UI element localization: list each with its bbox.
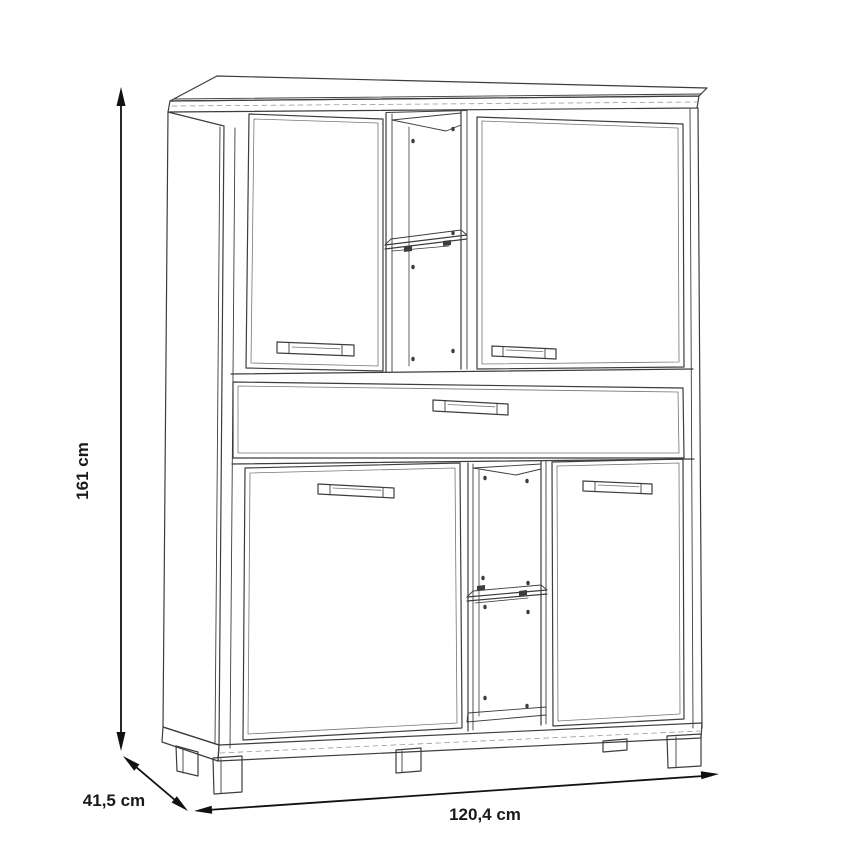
cabinet-right-corner xyxy=(690,108,702,728)
top-left-door xyxy=(246,114,383,371)
top-right-door-handle xyxy=(492,346,556,359)
shelf-bracket xyxy=(443,240,451,246)
cabinet-left-side-panel xyxy=(163,112,235,748)
arrowhead-right-icon xyxy=(701,771,719,779)
cabinet-diagram-svg: 161 cm 41,5 cm 120,4 cm xyxy=(0,0,865,866)
drawer-handle xyxy=(433,400,508,415)
drawer xyxy=(233,382,684,458)
bottom-left-door-handle xyxy=(318,484,394,498)
bottom-left-door xyxy=(243,463,462,740)
shelf-bracket xyxy=(519,590,527,596)
bottom-right-door xyxy=(552,459,684,726)
shelf-bracket xyxy=(477,585,485,591)
cabinet-top-slab xyxy=(168,76,707,112)
width-dimension-label: 120,4 cm xyxy=(449,805,521,824)
cabinet-drawing xyxy=(162,76,707,794)
arrowhead-left-icon xyxy=(194,806,212,814)
top-left-door-handle xyxy=(277,342,354,356)
upper-shelf xyxy=(385,230,467,252)
lower-shelf-compartment xyxy=(467,461,547,731)
back-right-foot xyxy=(603,739,627,752)
depth-dimension-label: 41,5 cm xyxy=(83,791,145,810)
bottom-right-door-handle xyxy=(583,481,652,494)
upper-shelf-compartment xyxy=(385,111,467,373)
height-dimension xyxy=(117,87,126,751)
height-dimension-label: 161 cm xyxy=(73,442,92,500)
arrowhead-up-icon xyxy=(117,87,126,106)
front-left-foot xyxy=(213,756,242,794)
product-dimension-diagram: 161 cm 41,5 cm 120,4 cm xyxy=(0,0,865,866)
shelf-bracket xyxy=(404,246,412,252)
dimension-annotations: 161 cm 41,5 cm 120,4 cm xyxy=(73,87,719,824)
top-right-door xyxy=(477,117,684,369)
arrowhead-down-icon xyxy=(117,732,126,751)
